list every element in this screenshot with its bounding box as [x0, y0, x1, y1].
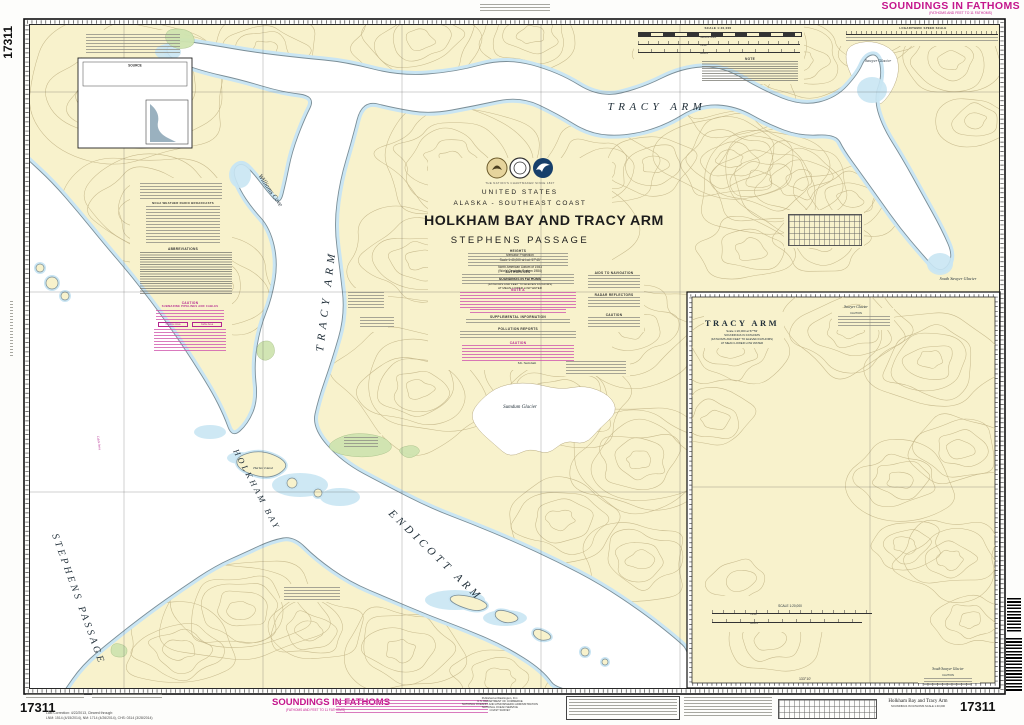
inset-sub-datum: AT MEAN LOWER LOW WATER [721, 341, 763, 345]
inset-scale-label: SCALE 1:20,000 [778, 604, 802, 608]
inset-sawyer-note [838, 316, 890, 328]
publisher-block: Published at Washington, D.C. U.S. DEPAR… [440, 697, 560, 712]
note-a-text [460, 292, 576, 308]
caution2-note [588, 317, 640, 329]
source-diagram-inset: SOURCE [78, 58, 192, 148]
designed-note-box [566, 696, 680, 720]
corrections-line1: Last Correction: 4/22/2013, Cleared thro… [46, 711, 113, 715]
users-note [684, 697, 772, 717]
authorities-note [462, 274, 574, 286]
noaa-tagline: THE NATION'S CHARTMAKER SINCE 1807 [424, 182, 616, 186]
main-scale-header: SCALE 1:40,000 [688, 26, 748, 30]
pipeline-note-b [154, 329, 226, 353]
inset-scalebar-yards-label: Yards [750, 613, 757, 616]
scalebar-meters-label: Meters [700, 52, 708, 55]
scalebar-nm [638, 32, 802, 37]
caution-note [462, 345, 574, 363]
inset-label-south-sawyer: South Sawyer Glacier [932, 667, 964, 671]
top-margin-note [480, 4, 550, 11]
inset-lon-label: 133°10' [799, 677, 811, 681]
inset-scalebar-yards [712, 610, 872, 614]
pipeline-area-box: Pipeline Area [158, 322, 188, 327]
cable-area-box: Cable Area [192, 322, 222, 327]
source-table-title: SOURCE [128, 64, 142, 68]
title-region: ALASKA - SOUTHEAST COAST [424, 200, 616, 209]
tracy-arm-inset: TRACY ARM Scale 1:20,000 at 57°53' SOUND… [671, 279, 1015, 688]
barcode-small [1007, 598, 1021, 632]
label-sawyer-glacier: Sawyer Glacier [865, 58, 892, 63]
inset-scalebar-meters [712, 619, 862, 623]
memorial-note [140, 183, 222, 199]
bottom-right-title-block: Holkham Bay and Tracy Arm SOUNDINGS IN F… [868, 699, 968, 708]
chart-subtitle: STEPHENS PASSAGE [424, 235, 616, 248]
note-a-sub [470, 309, 566, 313]
sumdum-note [566, 361, 626, 374]
designed-note-text [569, 699, 677, 716]
scalebar-nm-label: Nautical Miles [700, 36, 716, 39]
top-note-text [702, 61, 798, 81]
publisher-line5: COAST SURVEY [440, 709, 560, 712]
bottom-left-snippet-1 [26, 694, 84, 698]
pollution-note [460, 331, 576, 339]
pipeline-caution-sub: SUBMARINE PIPELINES AND CABLES [154, 305, 226, 308]
heights-note [468, 253, 568, 267]
weather-header: NOAA WEATHER RADIO BROADCASTS [143, 201, 223, 205]
peninsula-note [284, 587, 340, 600]
abbrev-table [140, 252, 232, 294]
scalebar-meters [638, 49, 800, 53]
label-sumdum-glacier: Sumdum Glacier [503, 405, 537, 410]
range-note-1 [348, 292, 384, 310]
inset-scalebar-meters-label: Meters [750, 622, 758, 625]
inset-sawyer-caution: CAUTION [850, 311, 862, 315]
label-harbor-island: Harbor Island [252, 466, 273, 470]
inset-label-sawyer: Sawyer Glacier [844, 305, 868, 309]
range-note-2 [360, 317, 394, 328]
nautical-chart-sheet: TRACY ARM TRACY ARM Williams Cove HOLKHA… [0, 0, 1024, 725]
aids-note [588, 275, 640, 289]
abbrev-header: ABBREVIATIONS [150, 247, 216, 251]
br-chart-title: Holkham Bay and Tracy Arm [868, 699, 968, 704]
corrections-grid [778, 699, 877, 719]
bottom-left-snippet-2 [92, 694, 162, 698]
log-scale-bar [846, 31, 998, 35]
chart-title: HOLKHAM BAY AND TRACY ARM [424, 212, 616, 231]
label-south-sawyer-glacier: South Sawyer Glacier [940, 276, 977, 281]
weather-table [146, 206, 220, 244]
commerce-seal-icon [510, 158, 530, 178]
topleft-note [86, 34, 180, 54]
scalebar-yards [638, 41, 800, 45]
agency-logos [483, 156, 557, 182]
flat-note [344, 437, 378, 447]
inset-ssawyer-caution: CAUTION [942, 673, 954, 677]
chart-number-bottom-right: 17311 [960, 699, 995, 714]
inset-ssawyer-note [924, 678, 972, 686]
log-scale-note [846, 37, 998, 43]
soundings-top-right-sub: (FATHOMS AND FEET TO 11 FATHOMS) [929, 11, 992, 15]
corrections-line2: LNM: 1514 (4/15/2014), NM: 1714 (4/26/20… [46, 716, 153, 720]
pipeline-note-a [156, 310, 224, 320]
scalebar-yards-label: Yards [700, 44, 707, 47]
barcode-large [1006, 638, 1022, 692]
left-edge-note [10, 300, 13, 356]
supplemental-note [466, 319, 570, 325]
radar-note [588, 297, 640, 309]
tide-table [788, 214, 862, 246]
br-chart-sub: SOUNDINGS IN FATHOMS SCALE 1:40,000 [868, 705, 968, 708]
title-country: UNITED STATES [424, 189, 616, 198]
chart-number-left-edge: 17311 [1, 26, 15, 59]
label-tracy-arm-top: TRACY ARM [608, 101, 707, 113]
inset-title: TRACY ARM [705, 318, 779, 328]
log-scale-header: LOGARITHMIC SPEED SCALE [888, 26, 958, 30]
